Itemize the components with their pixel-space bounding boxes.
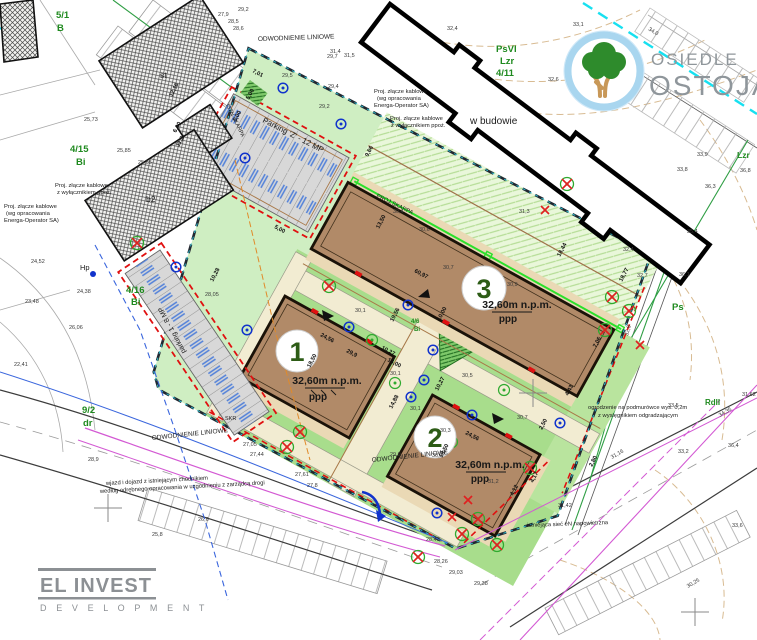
spot-label: 31,2	[488, 479, 499, 485]
spot-label: 28,5	[228, 19, 239, 25]
spot-label: 36,1	[679, 272, 690, 278]
spot-label: 28,43	[426, 537, 440, 543]
note-label: Energa-Operator SA)	[374, 103, 429, 109]
note-label: w budowie	[469, 116, 518, 127]
spot-label: 27,9	[218, 12, 229, 18]
spot-label: 36,8	[740, 168, 751, 174]
spot-label: 30,3	[432, 453, 443, 459]
site-plan-page: 1 2 3 32,60m n.p.m. ppp 32,60m n.p.m. pp…	[0, 0, 757, 640]
spot-label: 32,4	[447, 26, 458, 32]
parcel-label: RdII	[705, 398, 720, 407]
spot-label: 29,03	[449, 570, 463, 576]
spot-label: 30,1	[390, 371, 401, 377]
parcel-label: 4/16	[126, 285, 145, 296]
spot-label: 28,26	[434, 559, 448, 565]
spot-label: 30,9	[507, 282, 518, 288]
estate-name-top: OSIEDLE	[651, 50, 739, 69]
building-2-floor: ppp	[471, 474, 489, 485]
building-1-number: 1	[289, 337, 304, 367]
note-label: (wg opracowania	[377, 96, 422, 102]
parcel-label: Bi	[414, 327, 420, 333]
spot-label: 29,5	[282, 73, 293, 79]
spot-label: 27,44	[250, 452, 264, 458]
spot-label: 35,4	[687, 229, 698, 235]
building-1-elevation: 32,60m n.p.m.	[292, 375, 362, 387]
parcel-label: B	[57, 23, 64, 34]
spot-label: 36,3	[705, 184, 716, 190]
spot-label: 33,2	[678, 449, 689, 455]
spot-label: 33,8	[677, 167, 688, 173]
spot-label: 24,52	[31, 259, 45, 265]
spot-label: 23,48	[25, 299, 39, 305]
note-label: b2	[146, 194, 156, 204]
parcel-label: 4/11	[496, 68, 515, 79]
estate-name-bottom: OSTOJA	[649, 70, 757, 101]
note-label: st	[160, 70, 167, 80]
parcel-label: Ps	[672, 302, 684, 313]
building-3-floor: ppp	[499, 314, 517, 325]
note-label: SKR	[225, 416, 236, 422]
building-3-elevation: 32,60m n.p.m.	[482, 299, 552, 311]
site-plan-drawing: 1 2 3 32,60m n.p.m. ppp 32,60m n.p.m. pp…	[0, 0, 757, 640]
spot-label: 30,3	[440, 428, 451, 434]
spot-label: 29,2	[319, 104, 330, 110]
spot-label: 27,05	[243, 442, 257, 448]
existing-building-a	[0, 0, 38, 62]
hp-benchmark-icon	[90, 271, 96, 277]
spot-label: 36,4	[728, 443, 739, 449]
note-label: Proj. złącze kablowe	[55, 183, 108, 189]
spot-label: 25,8	[152, 532, 163, 538]
spot-label: 30,1	[410, 406, 421, 412]
spot-label: 28,6	[233, 26, 244, 32]
spot-label: 31,42	[558, 503, 572, 509]
spot-label: 27,61	[295, 472, 309, 478]
parcel-label: dr	[83, 418, 93, 429]
spot-label: 22,41	[14, 362, 28, 368]
parcel-label: 9/2	[82, 405, 95, 416]
building-1-floor: ppp	[309, 392, 327, 403]
note-label: z wyłącznikiem ppoż.	[391, 123, 446, 129]
parcel-label: 4/15	[70, 144, 89, 155]
parcel-label: Lzr	[737, 150, 750, 160]
spot-label: 31,3	[519, 209, 530, 215]
spot-label: 32,6	[548, 77, 559, 83]
spot-label: 31,62	[742, 392, 756, 398]
spot-label: 26,6	[198, 517, 209, 523]
spot-label: 28,05	[205, 292, 219, 298]
parcel-label: 5/1	[56, 10, 70, 21]
spot-label: 33,9	[697, 152, 708, 158]
note-label: Proj. złącze kablowe	[390, 116, 443, 122]
spot-label: 31,4	[330, 49, 341, 55]
spot-label: 32,7	[637, 273, 648, 279]
spot-label: 29,2	[238, 7, 249, 13]
parcel-label: Bi	[131, 297, 141, 308]
spot-label: 30,5	[462, 373, 473, 379]
note-label: (wg opracowania	[6, 211, 51, 217]
parcel-label: 4/6	[411, 319, 420, 325]
note-label: Proj. złącze kablowe	[374, 89, 427, 95]
note-label: Proj. złącze kablowe	[4, 204, 57, 210]
note-label: z wysięgnikiem odgradzającym	[598, 413, 678, 419]
spot-label: 24,38	[77, 289, 91, 295]
spot-label: 30,7	[443, 265, 454, 271]
spot-label: 25,85	[117, 148, 131, 154]
spot-label: 33,6	[732, 523, 743, 529]
spot-label: 28,9	[88, 457, 99, 463]
spot-label: 32,4	[623, 247, 634, 253]
spot-label: 27,8	[307, 483, 318, 489]
developer-subtitle: D E V E L O P M E N T	[40, 603, 208, 613]
spot-label: 25,65	[138, 160, 152, 166]
logo-rule-bottom	[38, 597, 156, 600]
note-label: Hp	[80, 263, 90, 272]
parcel-label: PsVI	[496, 44, 517, 55]
parcel-label: Lzr	[500, 56, 515, 67]
note-label: Energa-Operator SA)	[4, 218, 59, 224]
spot-label: 33,1	[573, 22, 584, 28]
spot-label: 29,4	[328, 84, 339, 90]
logo-rule-top	[38, 568, 156, 571]
spot-label: 29,38	[474, 581, 488, 587]
spot-label: 29,9	[390, 452, 401, 458]
spot-label: 33,5	[668, 403, 679, 409]
note-label: z wyłącznikiem ppoż.	[57, 190, 112, 196]
spot-label: 30,4	[393, 209, 404, 215]
parcel-label: Bi	[76, 157, 86, 168]
spot-label: 25,73	[84, 117, 98, 123]
spot-label: 30,7	[517, 415, 528, 421]
spot-label: 30,6	[419, 227, 430, 233]
building-2-elevation: 32,60m n.p.m.	[455, 459, 525, 471]
spot-label: 26,06	[69, 325, 83, 331]
spot-label: 30,1	[355, 308, 366, 314]
developer-name: EL INVEST	[40, 575, 152, 597]
spot-label: 31,5	[344, 53, 355, 59]
